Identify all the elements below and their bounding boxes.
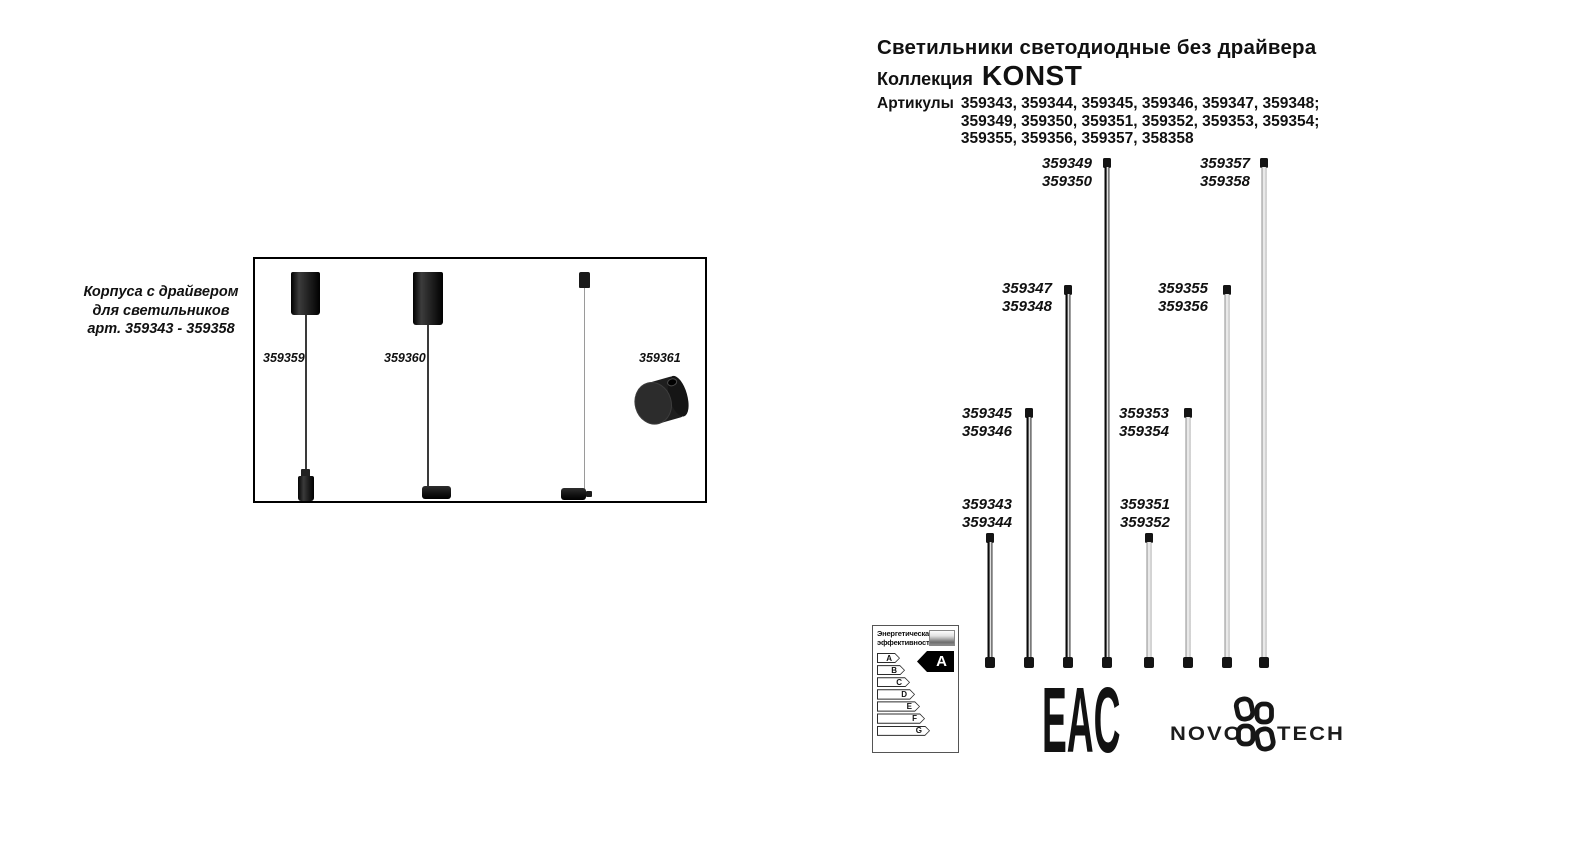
article-number: 359356 bbox=[1158, 298, 1208, 316]
article-number: 359343 bbox=[962, 496, 1012, 514]
gradient-lamp-bar-icon bbox=[929, 630, 955, 646]
luminaire-rod-359343-359344 bbox=[985, 533, 995, 668]
energy-class-B: B bbox=[877, 665, 905, 675]
suspension-wire bbox=[584, 288, 585, 489]
rod-label-359343-359344: 359343359344 bbox=[962, 496, 1012, 531]
article-number: 359353 bbox=[1119, 405, 1169, 423]
article-number: 359351 bbox=[1120, 496, 1170, 514]
articles-label: Артикулы bbox=[877, 95, 954, 148]
pendant-end-connector-359360 bbox=[422, 486, 451, 499]
energy-efficiency-label: Энергетическая эффективность A B C D E F… bbox=[872, 625, 959, 753]
housings-caption: Корпуса с драйвером для светильников арт… bbox=[61, 283, 261, 339]
luminaire-rod-359347-359348 bbox=[1063, 285, 1073, 668]
pendant-canopy-359360 bbox=[413, 272, 443, 325]
rod-label-359345-359346: 359345359346 bbox=[962, 405, 1012, 440]
rod-bottom-cap-icon bbox=[1222, 657, 1232, 668]
energy-class-C: C bbox=[877, 677, 910, 687]
energy-class-D: D bbox=[877, 689, 915, 699]
rod-label-359349-359350: 359349359350 bbox=[1042, 155, 1092, 190]
caption-line: арт. 359343 - 359358 bbox=[61, 320, 261, 339]
rod-body bbox=[988, 542, 993, 658]
article-number: 359355 bbox=[1158, 280, 1208, 298]
article-number: 359354 bbox=[1119, 423, 1169, 441]
energy-label-title: Энергетическая эффективность bbox=[877, 630, 934, 647]
energy-class-G: G bbox=[877, 726, 930, 736]
eac-certification-logo: EAC bbox=[1042, 686, 1121, 754]
suspension-top-cap bbox=[579, 272, 590, 288]
article-number: 359344 bbox=[962, 514, 1012, 532]
rod-bottom-cap-icon bbox=[1024, 657, 1034, 668]
rod-body bbox=[1066, 294, 1071, 658]
articles-block: Артикулы 359343, 359344, 359345, 359346,… bbox=[877, 95, 1319, 148]
brand-name-left: NOVO bbox=[1170, 722, 1243, 745]
rod-bottom-cap-icon bbox=[1144, 657, 1154, 668]
rod-label-359351-359352: 359351359352 bbox=[1120, 496, 1170, 531]
pinwheel-petals-icon bbox=[1233, 696, 1277, 752]
rod-bottom-cap-icon bbox=[1063, 657, 1073, 668]
novotech-logo: NOVO TECH bbox=[1156, 688, 1371, 760]
caption-line: для светильников bbox=[61, 302, 261, 321]
rod-bottom-cap-icon bbox=[1259, 657, 1269, 668]
suspension-end-nub bbox=[586, 491, 592, 497]
driver-housings-box: 359359 359360 359361 bbox=[253, 257, 707, 503]
rod-body bbox=[1105, 167, 1110, 658]
rod-label-359353-359354: 359353359354 bbox=[1119, 405, 1169, 440]
luminaire-rod-359357-359358 bbox=[1259, 158, 1269, 668]
rod-body bbox=[1262, 167, 1267, 658]
suspension-end-connector bbox=[561, 488, 586, 500]
pendant-cord-359359 bbox=[305, 315, 307, 470]
puck-driver-image bbox=[628, 364, 702, 438]
collection-row: Коллекция KONST bbox=[877, 60, 1082, 92]
part-label-359360: 359360 bbox=[384, 351, 426, 365]
pendant-end-body-359359 bbox=[298, 476, 314, 501]
articles-line: 359349, 359350, 359351, 359352, 359353, … bbox=[961, 113, 1320, 131]
collection-label: Коллекция bbox=[877, 69, 973, 90]
luminaire-rod-359349-359350 bbox=[1102, 158, 1112, 668]
luminaire-rod-359355-359356 bbox=[1222, 285, 1232, 668]
rod-label-359355-359356: 359355359356 bbox=[1158, 280, 1208, 315]
luminaire-rod-359345-359346 bbox=[1024, 408, 1034, 668]
part-label-359361: 359361 bbox=[639, 351, 681, 365]
article-number: 359357 bbox=[1200, 155, 1250, 173]
luminaire-rod-359351-359352 bbox=[1144, 533, 1154, 668]
article-number: 359352 bbox=[1120, 514, 1170, 532]
luminaire-rod-359353-359354 bbox=[1183, 408, 1193, 668]
energy-class-F: F bbox=[877, 713, 925, 723]
rod-body bbox=[1225, 294, 1230, 658]
article-number: 359345 bbox=[962, 405, 1012, 423]
energy-class-A: A bbox=[877, 653, 900, 663]
energy-rating-value: A bbox=[936, 653, 947, 670]
rod-label-359357-359358: 359357359358 bbox=[1200, 155, 1250, 190]
article-number: 359349 bbox=[1042, 155, 1092, 173]
energy-class-E: E bbox=[877, 701, 920, 711]
rod-body bbox=[1147, 542, 1152, 658]
articles-list: 359343, 359344, 359345, 359346, 359347, … bbox=[961, 95, 1320, 148]
article-number: 359346 bbox=[962, 423, 1012, 441]
rod-bottom-cap-icon bbox=[1102, 657, 1112, 668]
pendant-cord-359360 bbox=[427, 325, 429, 488]
pendant-canopy-359359 bbox=[291, 272, 320, 315]
caption-line: Корпуса с драйвером bbox=[61, 283, 261, 302]
rod-body bbox=[1186, 417, 1191, 658]
articles-line: 359343, 359344, 359345, 359346, 359347, … bbox=[961, 95, 1320, 113]
rod-bottom-cap-icon bbox=[985, 657, 995, 668]
article-number: 359347 bbox=[1002, 280, 1052, 298]
catalog-page: Светильники светодиодные без драйвера Ко… bbox=[0, 0, 1587, 858]
rod-bottom-cap-icon bbox=[1183, 657, 1193, 668]
rod-label-359347-359348: 359347359348 bbox=[1002, 280, 1052, 315]
article-number: 359358 bbox=[1200, 173, 1250, 191]
article-number: 359348 bbox=[1002, 298, 1052, 316]
page-title: Светильники светодиодные без драйвера bbox=[877, 36, 1316, 60]
collection-name: KONST bbox=[982, 60, 1083, 92]
articles-line: 359355, 359356, 359357, 358358 bbox=[961, 130, 1320, 148]
article-number: 359350 bbox=[1042, 173, 1092, 191]
brand-name-right: TECH bbox=[1277, 722, 1345, 745]
rod-body bbox=[1027, 417, 1032, 658]
part-label-359359: 359359 bbox=[263, 351, 305, 365]
energy-title-line: эффективность bbox=[877, 639, 934, 648]
